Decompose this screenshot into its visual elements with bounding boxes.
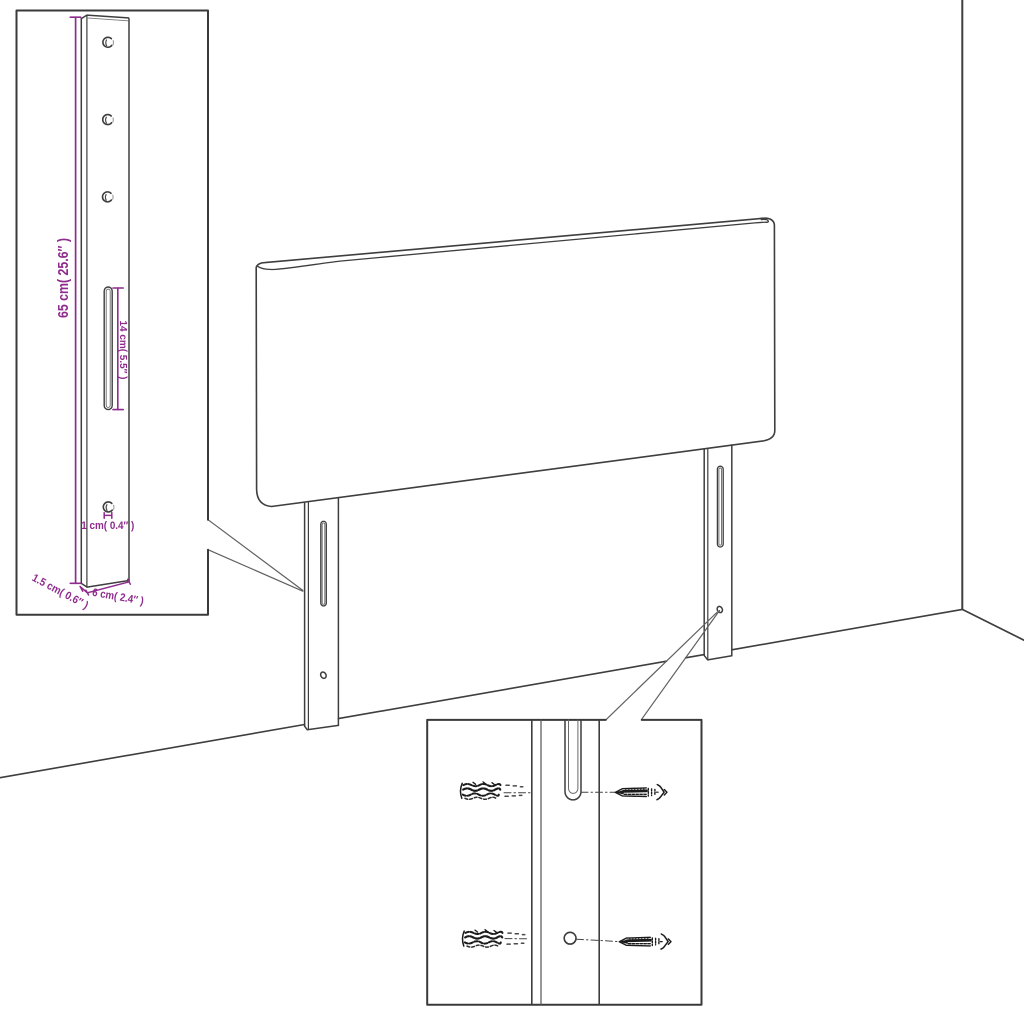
svg-text:65 cm( 25.6″ ): 65 cm( 25.6″ ) [56, 238, 72, 318]
svg-text:1 cm( 0.4″ ): 1 cm( 0.4″ ) [81, 520, 134, 532]
svg-text:6 cm( 2.4″ ): 6 cm( 2.4″ ) [91, 587, 145, 608]
svg-text:14 cm( 5.5″ ): 14 cm( 5.5″ ) [117, 321, 128, 380]
